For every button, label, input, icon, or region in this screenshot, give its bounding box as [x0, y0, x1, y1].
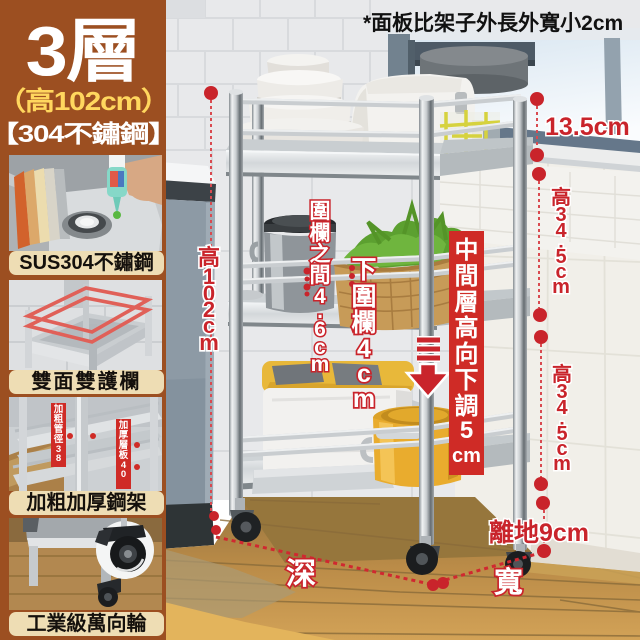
- svg-text:調: 調: [455, 392, 479, 420]
- svg-text:層: 層: [455, 289, 479, 316]
- svg-text:高: 高: [455, 314, 479, 342]
- svg-text:0: 0: [121, 469, 126, 480]
- svg-text:*面板比架子外長外寬小2cm: *面板比架子外長外寬小2cm: [363, 11, 623, 35]
- svg-text:之: 之: [310, 242, 331, 266]
- svg-text:寬: 寬: [494, 565, 523, 599]
- svg-text:向: 向: [455, 340, 479, 368]
- svg-text:中: 中: [455, 237, 479, 264]
- svg-text:間: 間: [455, 263, 479, 290]
- svg-text:m: m: [199, 330, 219, 355]
- svg-text:5: 5: [460, 417, 473, 444]
- svg-text:8: 8: [56, 453, 61, 464]
- svg-text:c: c: [357, 360, 371, 388]
- svg-text:m: m: [311, 353, 330, 376]
- svg-text:圍: 圍: [310, 200, 331, 223]
- svg-text:下: 下: [351, 256, 376, 284]
- svg-text:下: 下: [455, 367, 479, 394]
- svg-text:m: m: [552, 276, 570, 298]
- svg-text:間: 間: [310, 264, 331, 287]
- svg-text:cm: cm: [452, 445, 481, 467]
- svg-text:4: 4: [357, 335, 371, 363]
- svg-text:圍: 圍: [351, 283, 376, 311]
- svg-text:欄: 欄: [310, 221, 331, 245]
- svg-text:m: m: [553, 453, 571, 475]
- svg-text:離地9cm: 離地9cm: [489, 519, 589, 547]
- svg-text:13.5cm: 13.5cm: [545, 113, 630, 141]
- svg-text:m: m: [353, 385, 375, 413]
- svg-text:深: 深: [286, 558, 316, 591]
- svg-text:欄: 欄: [351, 309, 376, 337]
